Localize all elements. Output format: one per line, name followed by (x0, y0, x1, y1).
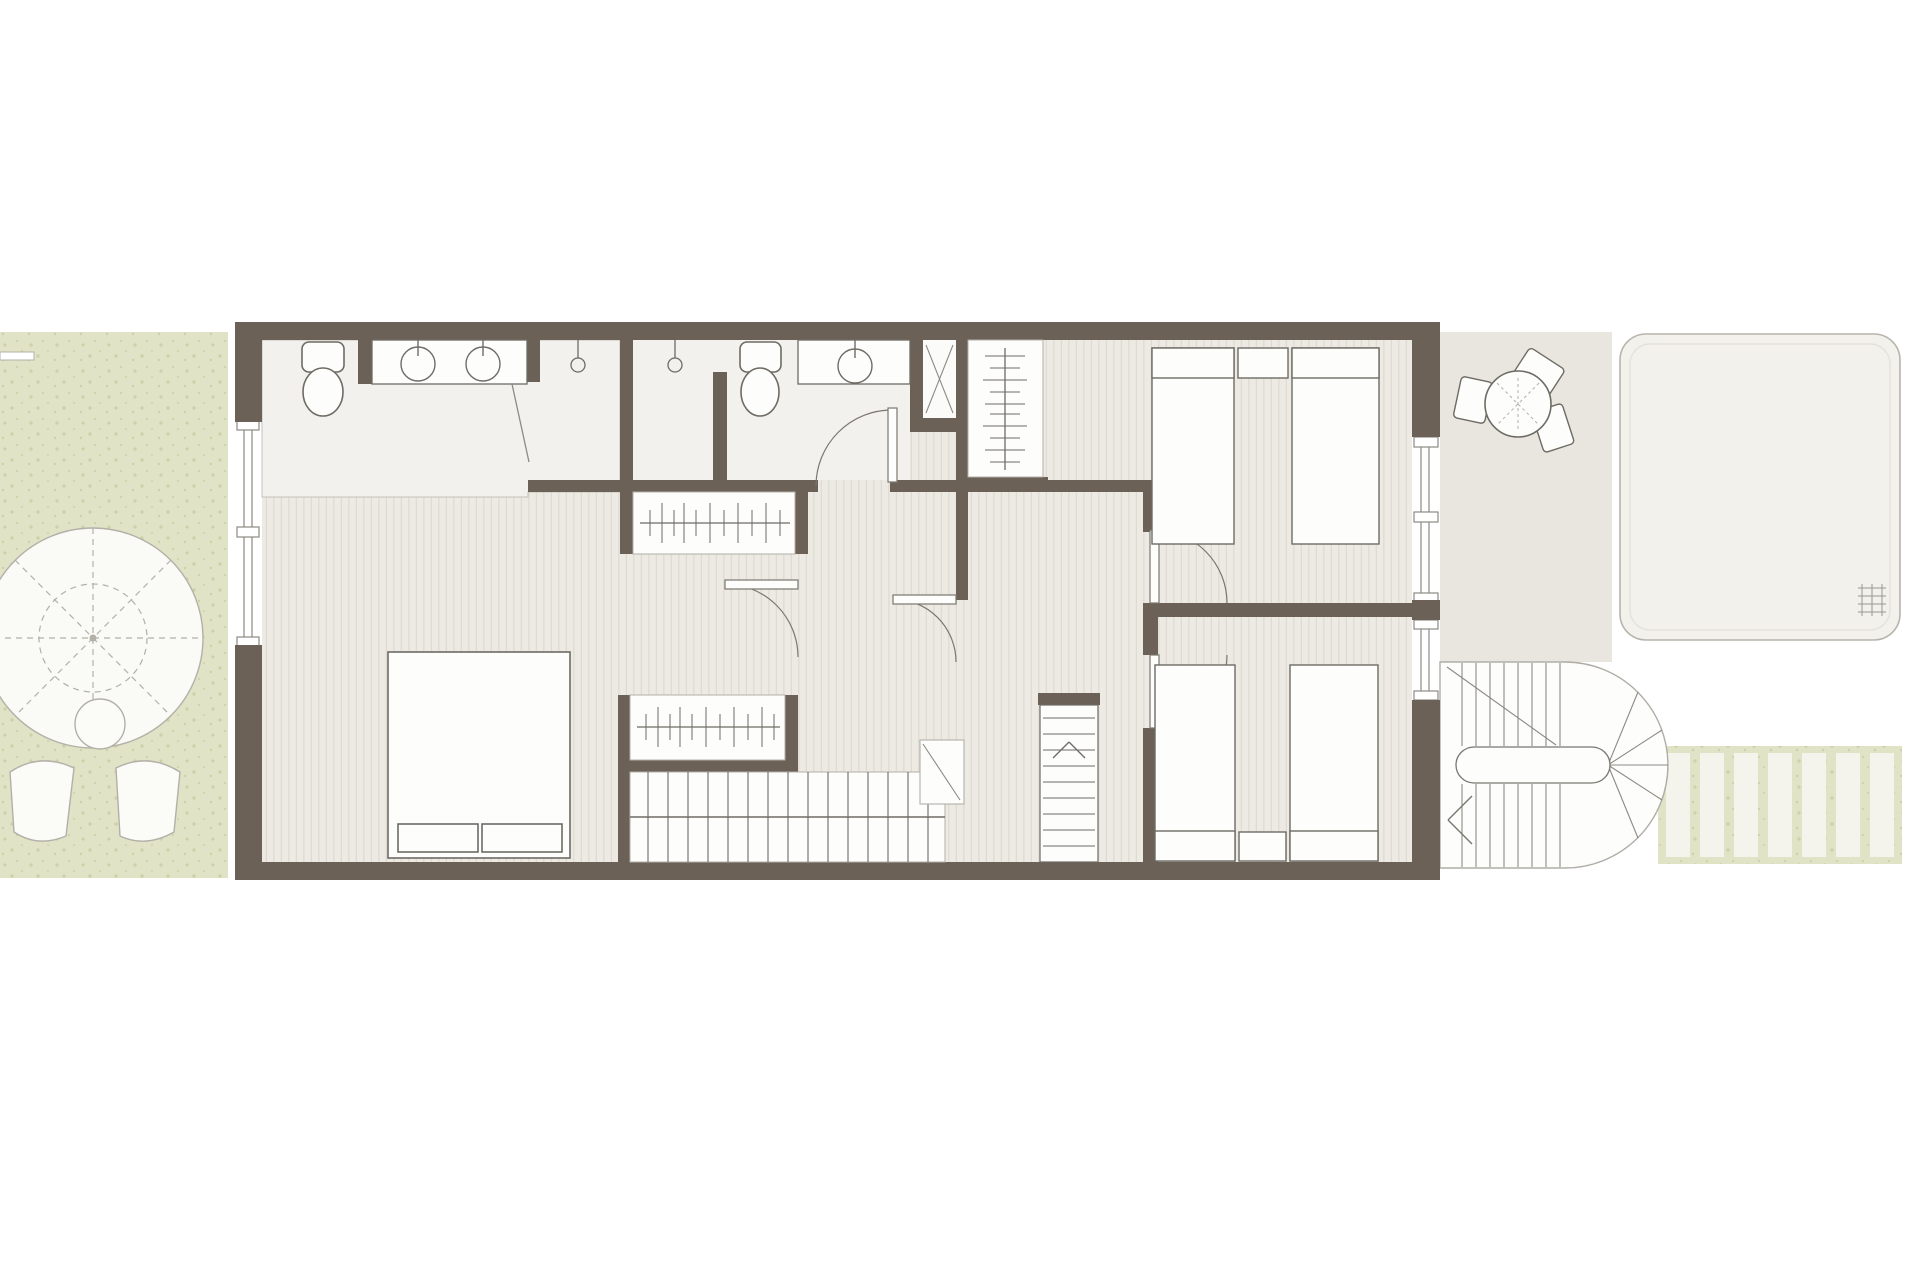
vanity-post-right (527, 340, 540, 382)
single-bed-icon (1152, 348, 1234, 544)
window-bedroom3 (1414, 620, 1438, 700)
wall-bedroom3-west-upper (1143, 617, 1158, 655)
wall-top (235, 322, 1440, 340)
stair-rail-void (1456, 747, 1610, 783)
pool-icon (1620, 334, 1900, 640)
wall-closetA-bottom (956, 477, 1048, 490)
closet-hall-upper (633, 492, 795, 554)
double-basin-vanity-icon (372, 340, 527, 384)
closet1-post-left (620, 492, 633, 554)
wall-hall-north-left (528, 480, 818, 492)
wall-right-upper (1412, 322, 1440, 437)
pillow (398, 824, 478, 852)
closet-hall-lower (630, 695, 785, 760)
basin-vanity-icon (798, 340, 910, 384)
window-bedroom2 (1414, 437, 1438, 603)
wall-cabin-right (956, 340, 968, 600)
stairs-post (618, 772, 630, 862)
garden-area (0, 332, 228, 878)
nightstand-icon (1239, 832, 1286, 861)
closet2-bottom (618, 760, 798, 772)
wall-bedrooms-divider (1143, 603, 1412, 617)
garden-wall-detail (0, 352, 34, 360)
pillow (482, 824, 562, 852)
closet-bedroom2 (968, 340, 1043, 477)
pillow (1152, 348, 1234, 378)
single-bed-icon (1292, 348, 1379, 544)
deck-planks-icon (1666, 753, 1894, 857)
shower-cabin-icon (923, 340, 956, 418)
toilet-icon (740, 342, 781, 416)
lounger-icon (116, 761, 180, 841)
pillow (1292, 348, 1379, 378)
wall-shower-divider (620, 340, 633, 492)
side-table-icon (75, 699, 125, 749)
ladder-stair-icon (1040, 705, 1098, 862)
pillow (1155, 831, 1235, 861)
single-bed-icon (1155, 665, 1235, 861)
wall-left-upper (235, 322, 262, 422)
terrace-area (1440, 332, 1902, 868)
wall-right-stub (1412, 600, 1440, 620)
master-bedroom-furniture (388, 652, 570, 858)
wall-left-lower (235, 645, 262, 880)
wall-right-lower (1412, 700, 1440, 880)
shower-room-floor (633, 340, 713, 492)
toilet-icon (302, 342, 344, 416)
return-spiral-staircase-icon (1440, 662, 1668, 868)
double-bed-icon (388, 652, 570, 858)
window-master-bedroom (237, 420, 259, 647)
vanity-post-left (358, 340, 372, 384)
ladder-cap (1038, 693, 1100, 705)
nightstand-icon (1238, 348, 1288, 378)
floor-plan-page (0, 0, 1920, 1280)
lounger-icon (10, 761, 74, 841)
wall-bottom (235, 862, 1440, 880)
floor-plan-drawing (0, 0, 1920, 1280)
closet1-post-right (795, 492, 808, 554)
pool-deck (1620, 334, 1900, 640)
pillow (1290, 831, 1378, 861)
pool-steps-icon (1858, 584, 1886, 616)
deck-planks-area (1658, 746, 1902, 864)
single-bed-icon (1290, 665, 1378, 861)
wall-bath2-west (713, 372, 727, 492)
